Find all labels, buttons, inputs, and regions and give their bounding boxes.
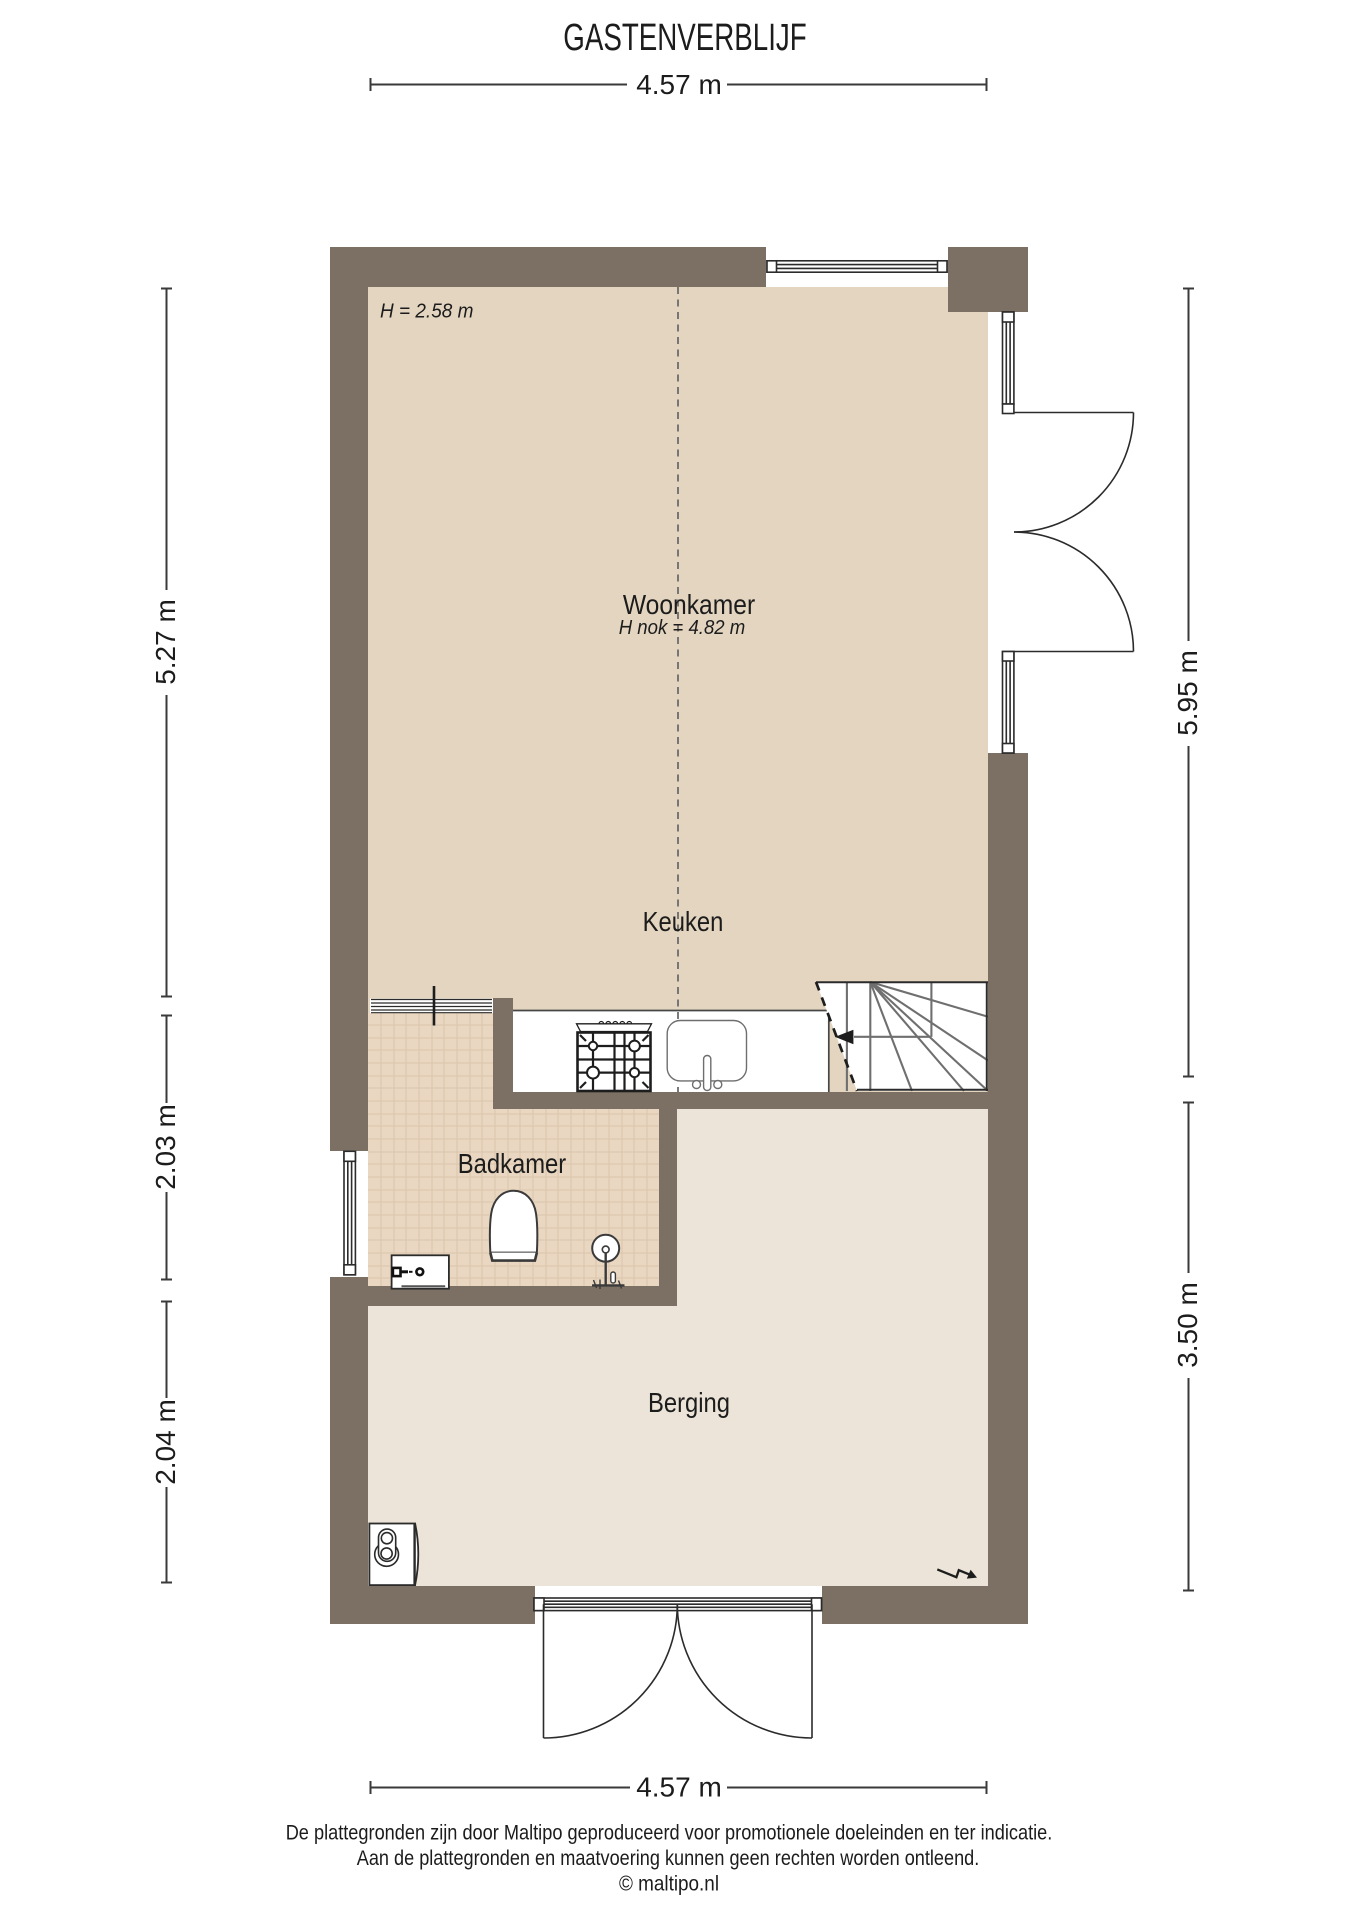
svg-text:H = 2.58 m: H = 2.58 m [380, 300, 473, 323]
svg-text:© maltipo.nl: © maltipo.nl [619, 1873, 719, 1896]
svg-text:Aan de plattegronden en maatvo: Aan de plattegronden en maatvoering kunn… [357, 1847, 980, 1871]
svg-text:4.57 m: 4.57 m [636, 1772, 722, 1803]
svg-text:Badkamer: Badkamer [458, 1147, 567, 1179]
svg-text:2.03 m: 2.03 m [150, 1104, 181, 1190]
svg-text:Berging: Berging [648, 1386, 730, 1418]
svg-text:2.04 m: 2.04 m [150, 1399, 181, 1485]
svg-text:GASTENVERBLIJF: GASTENVERBLIJF [563, 17, 806, 59]
svg-text:5.27 m: 5.27 m [150, 599, 181, 685]
svg-text:3.50 m: 3.50 m [1172, 1282, 1203, 1368]
svg-text:5.95 m: 5.95 m [1172, 650, 1203, 736]
svg-text:Keuken: Keuken [643, 905, 724, 937]
svg-text:4.57 m: 4.57 m [636, 69, 722, 100]
svg-text:De plattegronden zijn door Mal: De plattegronden zijn door Maltipo gepro… [286, 1821, 1053, 1845]
svg-text:H nok = 4.82 m: H nok = 4.82 m [619, 617, 746, 639]
svg-text:Woonkamer: Woonkamer [623, 589, 756, 621]
